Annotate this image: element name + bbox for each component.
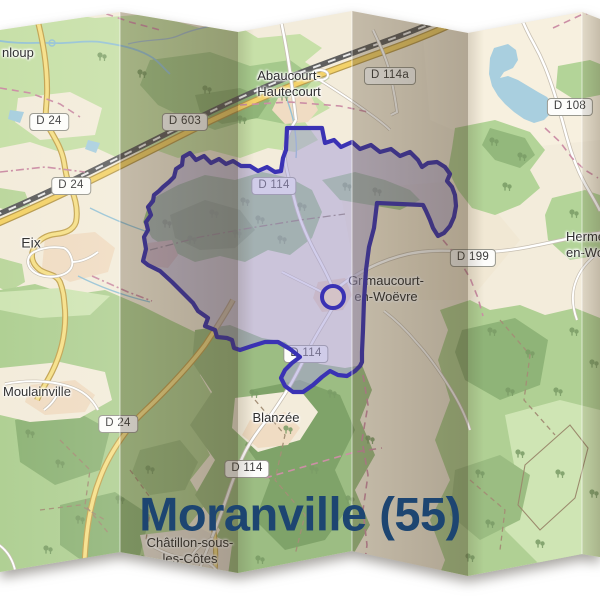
folded-map-screenshot: nloup Abaucourt- Hautecourt Eix Grimauco… bbox=[0, 0, 600, 600]
folded-paper-map: nloup Abaucourt- Hautecourt Eix Grimauco… bbox=[0, 0, 600, 600]
commune-center-marker bbox=[322, 286, 344, 308]
map-title: Moranville (55) bbox=[139, 487, 461, 542]
commune-boundary-polygon bbox=[143, 128, 456, 392]
paper-shadow: nloup Abaucourt- Hautecourt Eix Grimauco… bbox=[0, 0, 600, 600]
